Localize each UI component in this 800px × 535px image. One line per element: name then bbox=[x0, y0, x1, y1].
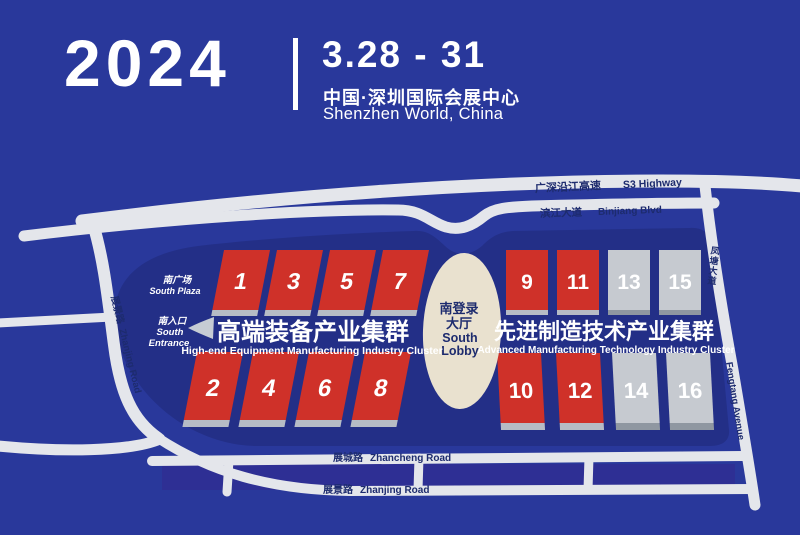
road-connector bbox=[227, 460, 229, 492]
road-connector bbox=[588, 457, 589, 490]
hall-number: 14 bbox=[623, 378, 650, 403]
south-entrance-label-en1: South bbox=[157, 327, 184, 338]
hall-number: 16 bbox=[677, 378, 703, 403]
hall-side bbox=[238, 420, 285, 427]
hall-side bbox=[264, 310, 311, 316]
hall-15: 15 bbox=[659, 250, 701, 315]
hall-number: 11 bbox=[567, 271, 590, 294]
road-zhanjing-fork-west bbox=[0, 439, 160, 450]
hall-16: 16 bbox=[666, 353, 714, 430]
hall-side bbox=[670, 423, 714, 430]
hall-side bbox=[506, 310, 548, 315]
south-lobby-label-cn1: 南登录 bbox=[439, 301, 478, 316]
cluster-right-title-en: Advanced Manufacturing Technology Indust… bbox=[477, 345, 734, 356]
poster: 2024 3.28 - 31 中国·深圳国际会展中心 Shenzhen Worl… bbox=[0, 0, 800, 535]
s3-highway-label-en: S3 Highway bbox=[623, 177, 683, 192]
cluster-left-title-cn: 高端装备产业集群 bbox=[217, 318, 409, 346]
hall-number: 13 bbox=[617, 271, 640, 294]
hall-number: 9 bbox=[521, 271, 533, 294]
hall-side bbox=[182, 420, 229, 427]
hall-side bbox=[370, 310, 417, 316]
south-lobby-label-en1: South bbox=[442, 331, 477, 345]
zhanjing-south-label-en: Zhanjing Road bbox=[360, 485, 429, 496]
south-lobby-label-en2: Lobby bbox=[441, 344, 479, 358]
hall-number: 10 bbox=[508, 378, 534, 403]
hall-11: 11 bbox=[557, 250, 599, 315]
hall-13: 13 bbox=[608, 250, 650, 315]
hall-14: 14 bbox=[612, 353, 660, 430]
hall-number: 15 bbox=[668, 271, 692, 294]
hall-side bbox=[350, 420, 397, 427]
hall-9: 9 bbox=[506, 250, 548, 315]
zhanjing-south-label-cn: 展景路 bbox=[323, 483, 354, 496]
hall-12: 12 bbox=[556, 353, 604, 430]
binjiang-blvd-label-cn: 滨江大道 bbox=[540, 206, 583, 220]
hall-side bbox=[659, 310, 701, 315]
south-lobby-label-cn2: 大厅 bbox=[446, 316, 472, 331]
zhancheng-label-cn: 展城路 bbox=[333, 451, 364, 464]
south-plaza-label-en: South Plaza bbox=[149, 286, 200, 296]
hall-side bbox=[608, 310, 650, 315]
south-plaza-label-cn: 南广场 bbox=[163, 274, 193, 286]
cluster-right-title-cn: 先进制造技术产业集群 bbox=[494, 319, 714, 344]
hall-10: 10 bbox=[497, 353, 545, 430]
zhancheng-label-en: Zhancheng Road bbox=[370, 453, 451, 464]
binjiang-blvd-label-en: Binjiang Blvd bbox=[598, 205, 662, 218]
road-west-stub bbox=[0, 317, 112, 323]
venue-map: 广深沿江高速 S3 Highway 滨江大道 Binjiang Blvd 展景路… bbox=[0, 0, 800, 535]
hall-side bbox=[557, 310, 599, 315]
hall-side bbox=[211, 310, 258, 316]
cluster-left-title-en: High-end Equipment Manufacturing Industr… bbox=[181, 345, 442, 357]
south-entrance-label-cn: 南入口 bbox=[158, 315, 188, 327]
hall-number: 12 bbox=[567, 378, 593, 403]
hall-side bbox=[501, 423, 545, 430]
hall-side bbox=[616, 423, 660, 430]
hall-side bbox=[317, 310, 364, 316]
hall-side bbox=[294, 420, 341, 427]
hall-side bbox=[560, 423, 604, 430]
south-entrance-label-en2: Entrance bbox=[149, 338, 190, 349]
